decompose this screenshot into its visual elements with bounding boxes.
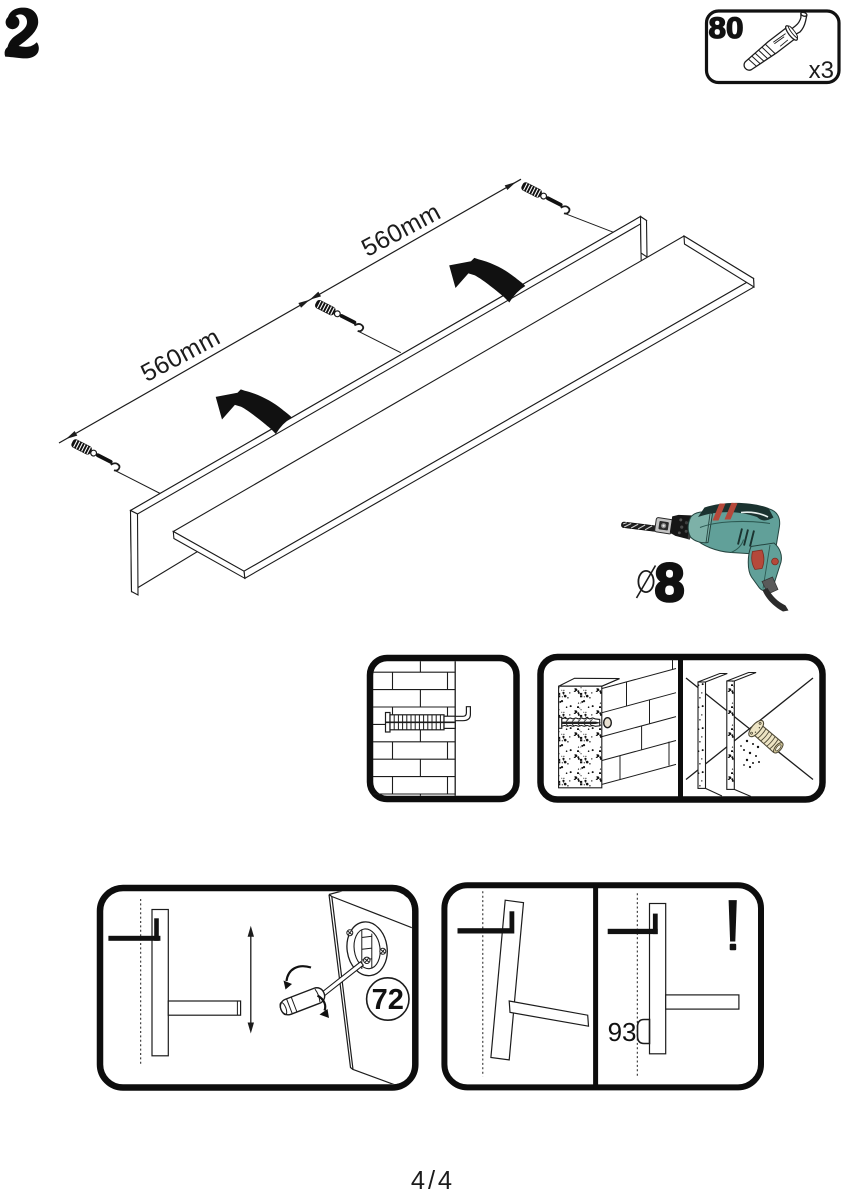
svg-text:80: 80	[709, 12, 744, 45]
svg-text:4: 4	[411, 1167, 425, 1195]
svg-text:4: 4	[438, 1167, 452, 1195]
svg-text:8: 8	[654, 553, 684, 613]
svg-text:x3: x3	[809, 57, 834, 84]
svg-text:93: 93	[608, 1017, 637, 1047]
svg-text:/: /	[428, 1167, 436, 1195]
svg-text:72: 72	[372, 984, 404, 1016]
